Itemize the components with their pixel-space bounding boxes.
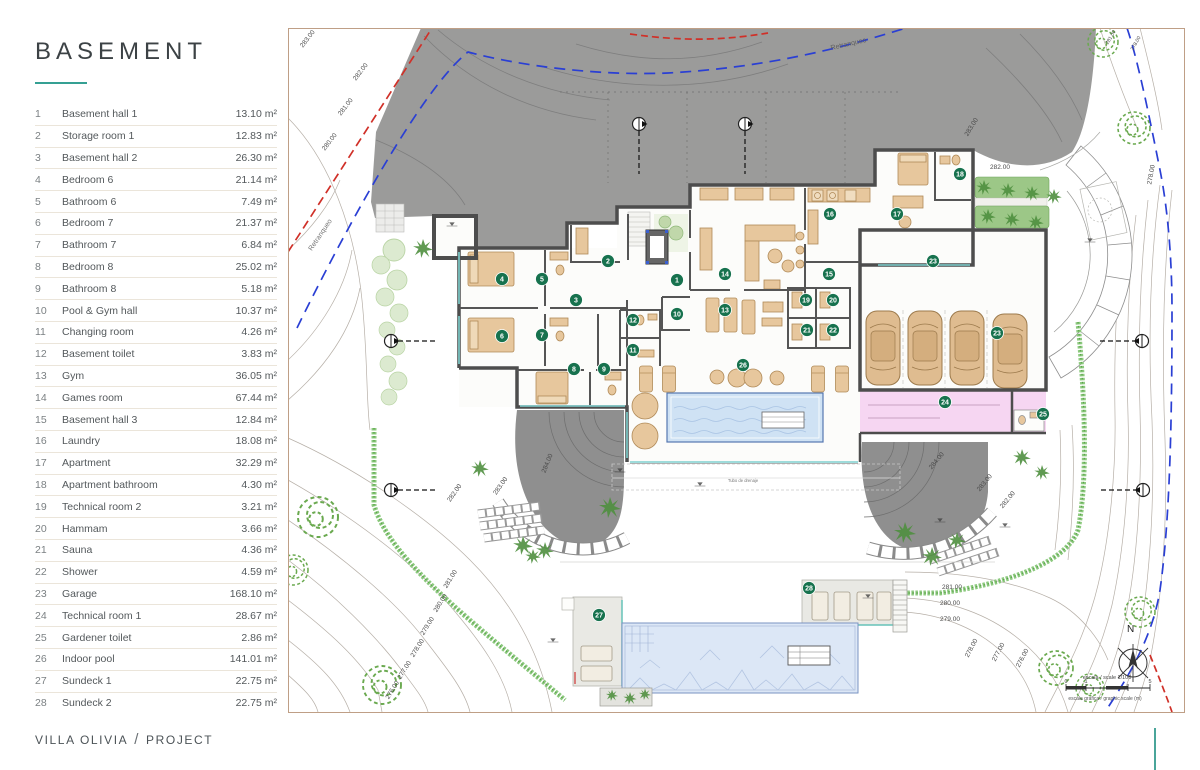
room-badge: 6 [496,330,509,343]
svg-text:9: 9 [602,367,606,374]
room-badge: 7 [536,329,549,342]
svg-text:21: 21 [803,328,811,335]
room-badge: 21 [801,324,814,337]
svg-text:23: 23 [993,331,1001,338]
room-badge: 20 [827,294,840,307]
contour-elevation-label: 279.00 [271,189,289,209]
entrance-tiles [376,204,404,232]
floor-plan-drawing: N escala / scale 1/100 0 1 5 escala gráf… [0,0,1200,770]
svg-text:15: 15 [825,272,833,279]
room-badge: 24 [939,396,952,409]
room-badge: 13 [719,304,732,317]
room-badge: 19 [800,294,813,307]
room-badge: 25 [1037,408,1050,421]
room-badge: 22 [827,324,840,337]
drain-label: Tubo de drenaje [728,478,759,483]
room-badge: 3 [570,294,583,307]
svg-text:20: 20 [829,298,837,305]
room-badge: 2 [602,255,615,268]
svg-text:19: 19 [802,298,810,305]
svg-text:12: 12 [629,318,637,325]
contour-elevation-label: 281.00 [942,584,962,591]
room-badge: 11 [627,344,640,357]
outdoor-pool [622,623,858,693]
svg-text:28: 28 [805,586,813,593]
room-badge: 28 [803,582,816,595]
svg-text:11: 11 [629,348,637,355]
room-badge: 4 [496,273,509,286]
room-badge: 27 [593,609,606,622]
room-badge: 5 [536,273,549,286]
svg-text:8: 8 [572,367,576,374]
svg-text:6: 6 [500,334,504,341]
svg-text:2: 2 [606,259,610,266]
room-badge: 17 [891,208,904,221]
indoor-pool [667,393,823,442]
pool-steps-ladder [893,580,907,632]
svg-text:27: 27 [595,613,603,620]
svg-text:13: 13 [721,308,729,315]
north-label: N [1127,624,1134,635]
room-badge: 1 [671,274,684,287]
svg-text:17: 17 [893,212,901,219]
contour-elevation-label: 280.00 [940,600,960,607]
room-badge: 16 [824,208,837,221]
room-badge: 23 [991,327,1004,340]
scale-text: escala / scale 1/100 [1083,675,1132,681]
svg-text:7: 7 [540,333,544,340]
svg-text:3: 3 [574,298,578,305]
room-badge: 10 [671,308,684,321]
room-badge: 14 [719,268,732,281]
room-badge: 18 [954,168,967,181]
room-badge: 8 [568,363,581,376]
scale-tick-0: 0 [1064,679,1067,685]
contour-elevation-label: 279.00 [940,616,960,623]
scale-tick-1: 1 [1084,679,1087,685]
svg-text:14: 14 [721,272,729,279]
graphic-scale-text: escala gráfica / graphic scale (m) [1068,696,1142,702]
svg-text:16: 16 [826,212,834,219]
room-badge: 9 [598,363,611,376]
room-badge: 12 [627,314,640,327]
svg-text:25: 25 [1039,412,1047,419]
svg-text:10: 10 [673,312,681,319]
scale-tick-5: 5 [1148,679,1151,685]
svg-text:22: 22 [829,328,837,335]
room-badge: 26 [737,359,750,372]
plan-content: N escala / scale 1/100 0 1 5 escala gráf… [271,26,1184,712]
room-badge: 23 [927,255,940,268]
svg-text:26: 26 [739,363,747,370]
svg-text:18: 18 [956,172,964,179]
page: { "sidebar": { "title": "BASEMENT", "roo… [0,0,1200,770]
svg-text:24: 24 [941,400,949,407]
svg-text:1: 1 [675,278,679,285]
svg-text:4: 4 [500,277,504,284]
svg-text:23: 23 [929,259,937,266]
room-badge: 15 [823,268,836,281]
contour-elevation-label: 282.00 [990,164,1010,171]
svg-text:5: 5 [540,277,544,284]
